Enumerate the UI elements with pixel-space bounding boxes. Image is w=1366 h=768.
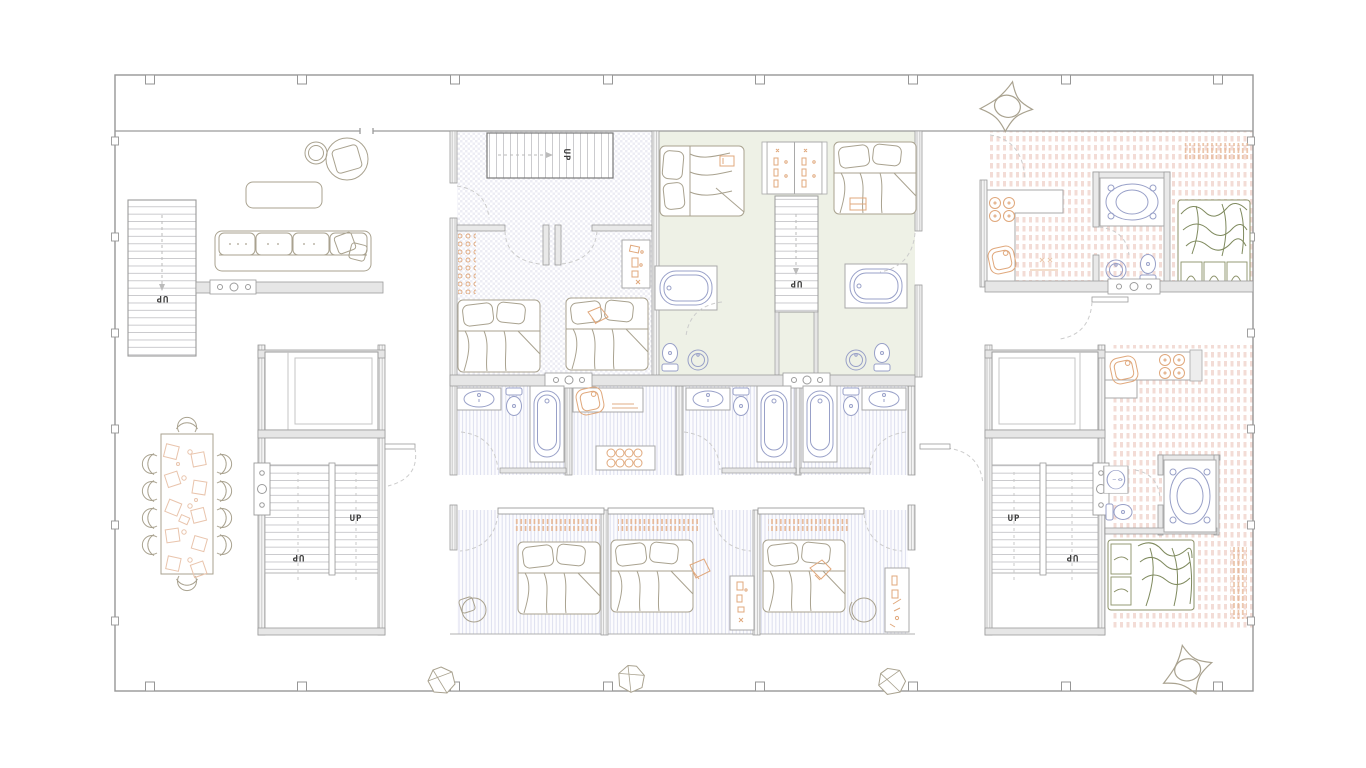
toilet-bath2: [733, 388, 749, 416]
bathtub-unit-b-right: [845, 264, 907, 308]
shaft-west: [265, 352, 378, 430]
spa-tub-unit-c: [1100, 178, 1164, 226]
shaft-east: [992, 352, 1098, 430]
south-top-walls: [498, 508, 864, 514]
toilet-unit-b-left: [662, 344, 678, 372]
sink-bath3: [862, 388, 906, 410]
floor-plan-canvas: UP: [0, 0, 1366, 768]
toilet-bath1: [506, 388, 522, 416]
bed-unit-a-2: [566, 298, 648, 370]
bed-unit-a-1: [458, 300, 540, 372]
boulder-3: [875, 665, 908, 697]
sofa: [215, 231, 371, 271]
bed-south-2: [611, 540, 693, 612]
dining-set: [142, 417, 231, 590]
west-core-door: [385, 444, 416, 486]
desk-south-3: [885, 568, 909, 632]
unit-a-up-label: UP: [561, 149, 571, 162]
east-core-door: [1060, 297, 1128, 339]
core-west: UP UP: [254, 350, 416, 635]
bed-south-1: [518, 542, 600, 614]
floor-plan-drawing: UP: [0, 0, 1366, 768]
east-core-up-label-right: UP: [1066, 552, 1079, 562]
bed-unit-d: [1108, 540, 1194, 610]
west-core-wall-panel: [254, 463, 270, 515]
bathtub-bath2: [757, 386, 791, 462]
star-rock-north: [976, 76, 1038, 137]
place-settings: [163, 444, 207, 578]
bed-south-3: [763, 540, 845, 612]
unit-a-stair: UP: [487, 133, 613, 178]
toilet-unit-d: [1106, 504, 1132, 520]
unit-c-bottom-counter: [985, 279, 1253, 294]
sink-bath1: [457, 388, 501, 410]
toilet-bath3: [843, 388, 859, 416]
lobby-long-stair: UP: [128, 200, 196, 356]
west-core-up-label-right: UP: [350, 514, 363, 524]
sink-unit-d: [1104, 466, 1128, 493]
closet-hatch-orange: [458, 232, 476, 294]
closet-rails-orange: [515, 519, 848, 532]
wardrobe: [762, 142, 827, 194]
rug-rail-unit-c: [1183, 143, 1250, 159]
boulder-1: [428, 667, 455, 693]
star-rock-south: [1158, 641, 1217, 699]
east-core-stair: UP UP: [992, 463, 1098, 582]
dining-chairs: [142, 417, 231, 590]
coffee-table: [246, 182, 322, 208]
toilet-unit-c: [1140, 255, 1156, 283]
bathtub-bath1: [530, 386, 564, 462]
bed-unit-c: [1178, 200, 1250, 284]
bathtub-unit-b-left: [655, 266, 717, 310]
column-ticks-top: [146, 75, 1223, 84]
rug-rail-unit-d: [1230, 545, 1247, 619]
armchair: [305, 138, 368, 180]
spa-tub-unit-d: [1164, 460, 1216, 532]
corridor-east-door-arc: [947, 448, 983, 484]
west-core-stair: UP UP: [265, 463, 378, 582]
east-core-up-label-left: UP: [1008, 514, 1021, 524]
desk-south-2: [730, 576, 754, 630]
center-stair-up-label: UP: [790, 278, 803, 288]
lobby-stair-up-label: UP: [156, 293, 169, 303]
dining-table: [161, 434, 213, 574]
lobby-counter: [196, 280, 383, 294]
desk-unit-a: [622, 240, 650, 288]
bed-unit-b-2: [834, 142, 916, 214]
corridor-east-door-leaf: [920, 444, 950, 449]
west-core-up-label-left: UP: [292, 552, 305, 562]
column-ticks-bottom: [146, 682, 1223, 691]
bathtub-bath3: [803, 386, 837, 462]
sink-bath2: [686, 388, 730, 410]
toilet-unit-b-right: [874, 344, 890, 372]
